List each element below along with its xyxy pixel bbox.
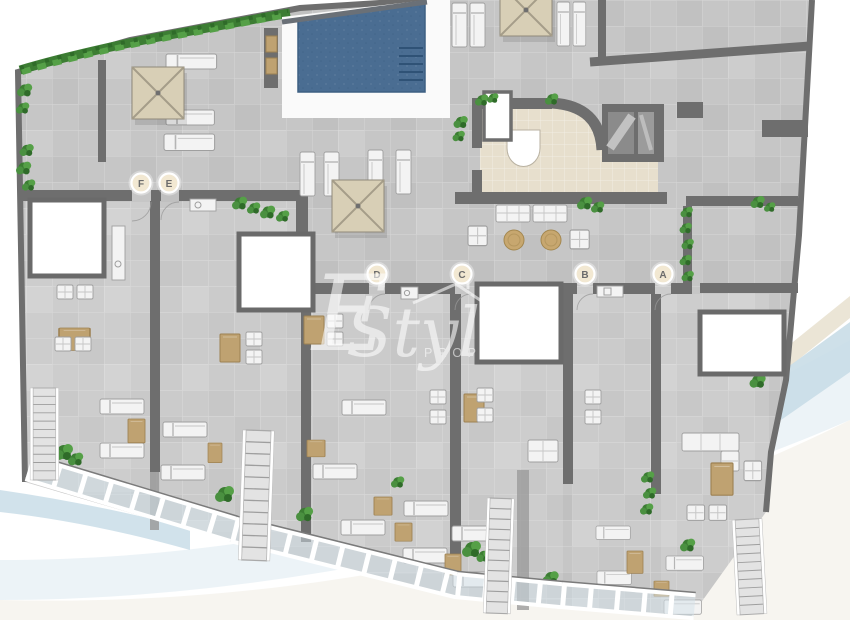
party-wall-c-b bbox=[563, 294, 573, 484]
stairs-icon bbox=[30, 388, 59, 480]
parasol-icon bbox=[332, 180, 387, 238]
lounger-icon bbox=[163, 422, 207, 437]
table-icon bbox=[220, 334, 240, 362]
unit-label-a: A bbox=[651, 262, 676, 287]
unit-label-f-text: F bbox=[138, 179, 144, 190]
party-wall-f-e bbox=[150, 201, 160, 472]
lounger-icon bbox=[470, 3, 485, 47]
wall-segment bbox=[98, 60, 106, 162]
lounger-icon bbox=[100, 399, 144, 414]
chair-icon bbox=[468, 226, 487, 246]
kitchenette bbox=[112, 226, 125, 280]
bench-cushion bbox=[266, 58, 277, 74]
chair-icon bbox=[57, 285, 73, 299]
lounger-icon bbox=[341, 520, 385, 535]
chair-icon bbox=[744, 461, 762, 481]
chair-icon bbox=[687, 505, 705, 520]
round-table-icon bbox=[541, 230, 561, 250]
lounger-icon bbox=[597, 571, 631, 585]
watermark-subtitle: PROPER bbox=[424, 346, 510, 360]
chair-icon bbox=[430, 390, 446, 404]
table-icon bbox=[627, 551, 643, 573]
lounger-icon bbox=[100, 443, 144, 458]
lounger-icon bbox=[396, 150, 411, 194]
lounger-icon bbox=[596, 526, 630, 540]
stairs-icon bbox=[732, 519, 767, 615]
chair-icon bbox=[477, 408, 493, 422]
lounger-icon bbox=[666, 556, 703, 570]
table-icon bbox=[208, 443, 222, 463]
lounger-icon bbox=[573, 2, 586, 46]
table-icon bbox=[128, 419, 145, 443]
stairs-icon bbox=[483, 498, 514, 614]
core-room bbox=[700, 312, 784, 374]
lounger-icon bbox=[404, 501, 448, 516]
table-icon bbox=[711, 463, 733, 495]
lounger-icon bbox=[452, 3, 467, 47]
unit-label-b: B bbox=[573, 262, 598, 287]
unit-label-f: F bbox=[129, 171, 154, 196]
unit-label-e: E bbox=[157, 171, 182, 196]
unit-label-e-text: E bbox=[166, 179, 173, 190]
chair-icon bbox=[709, 505, 727, 520]
chair-icon bbox=[55, 337, 71, 351]
stairs-icon bbox=[238, 430, 274, 561]
chair-icon bbox=[585, 390, 601, 404]
sofa-icon bbox=[533, 205, 567, 222]
floor-plan-canvas: F E D C B A E Style bbox=[0, 0, 850, 620]
lounger-icon bbox=[342, 400, 386, 415]
parasol-icon bbox=[132, 67, 187, 125]
sofa-icon bbox=[682, 433, 739, 451]
table-icon bbox=[395, 523, 412, 541]
chair-icon bbox=[477, 388, 493, 402]
lounger-icon bbox=[300, 152, 315, 196]
sofa-icon bbox=[496, 205, 530, 222]
chair-icon bbox=[585, 410, 601, 424]
unit-label-b-text: B bbox=[581, 270, 588, 281]
table-icon bbox=[307, 440, 325, 457]
table-icon bbox=[374, 497, 392, 515]
bench-cushion bbox=[266, 36, 277, 52]
party-wall-b-a bbox=[651, 294, 661, 494]
chair-icon bbox=[570, 230, 589, 249]
parasol-icon bbox=[500, 0, 555, 42]
kitchenette bbox=[190, 199, 216, 211]
lounger-icon bbox=[161, 465, 205, 480]
lobby bbox=[455, 92, 667, 204]
chair-icon bbox=[246, 332, 262, 346]
wall-stub bbox=[677, 102, 703, 118]
core-room bbox=[30, 200, 104, 276]
chair-icon bbox=[246, 350, 262, 364]
wall-stub bbox=[762, 120, 808, 137]
lounger-icon bbox=[313, 464, 357, 479]
unit-label-a-text: A bbox=[659, 270, 666, 281]
watermark-name: Style bbox=[346, 294, 520, 373]
chair-icon bbox=[77, 285, 93, 299]
lounger-icon bbox=[557, 2, 570, 46]
pool-area bbox=[264, 0, 450, 118]
lounger-icon bbox=[164, 134, 215, 151]
unit-label-c-text: C bbox=[458, 270, 465, 281]
core-room bbox=[239, 234, 313, 310]
unit-label-c: C bbox=[450, 262, 475, 287]
round-table-icon bbox=[504, 230, 524, 250]
chair-icon bbox=[75, 337, 91, 351]
floor-plan-image: F E D C B A E Style bbox=[0, 0, 850, 620]
chair-icon bbox=[430, 410, 446, 424]
